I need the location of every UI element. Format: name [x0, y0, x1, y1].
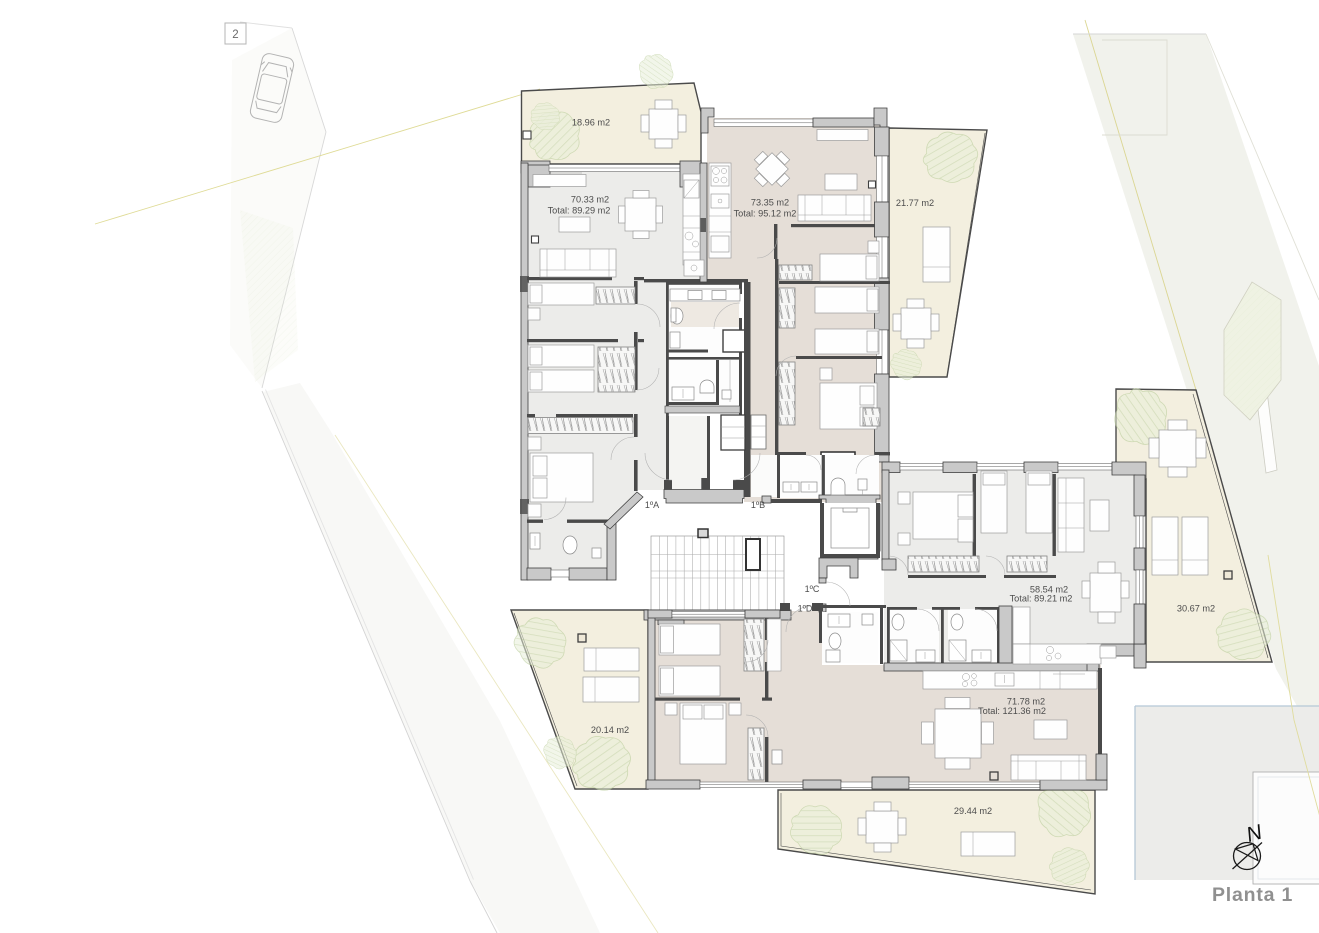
- svg-text:1ºD: 1ºD: [798, 604, 813, 614]
- svg-text:Total: 89.29 m2: Total: 89.29 m2: [548, 206, 611, 216]
- svg-text:Planta 1: Planta 1: [1212, 884, 1293, 906]
- svg-text:71.78 m2: 71.78 m2: [1007, 697, 1045, 707]
- svg-text:Total: 121.36 m2: Total: 121.36 m2: [978, 706, 1046, 716]
- svg-text:1ºA: 1ºA: [645, 500, 659, 510]
- svg-text:1ºB: 1ºB: [751, 500, 765, 510]
- svg-text:20.14 m2: 20.14 m2: [591, 725, 629, 735]
- svg-text:Total: 95.12 m2: Total: 95.12 m2: [734, 209, 797, 219]
- svg-text:29.44 m2: 29.44 m2: [954, 806, 992, 816]
- svg-text:21.77 m2: 21.77 m2: [896, 198, 934, 208]
- svg-text:1ºC: 1ºC: [805, 584, 820, 594]
- svg-text:2: 2: [232, 29, 238, 41]
- svg-text:30.67 m2: 30.67 m2: [1177, 604, 1215, 614]
- svg-text:70.33 m2: 70.33 m2: [571, 195, 609, 205]
- svg-text:18.96 m2: 18.96 m2: [572, 118, 610, 128]
- svg-text:Total: 89.21 m2: Total: 89.21 m2: [1010, 594, 1073, 604]
- svg-text:73.35 m2: 73.35 m2: [751, 198, 789, 208]
